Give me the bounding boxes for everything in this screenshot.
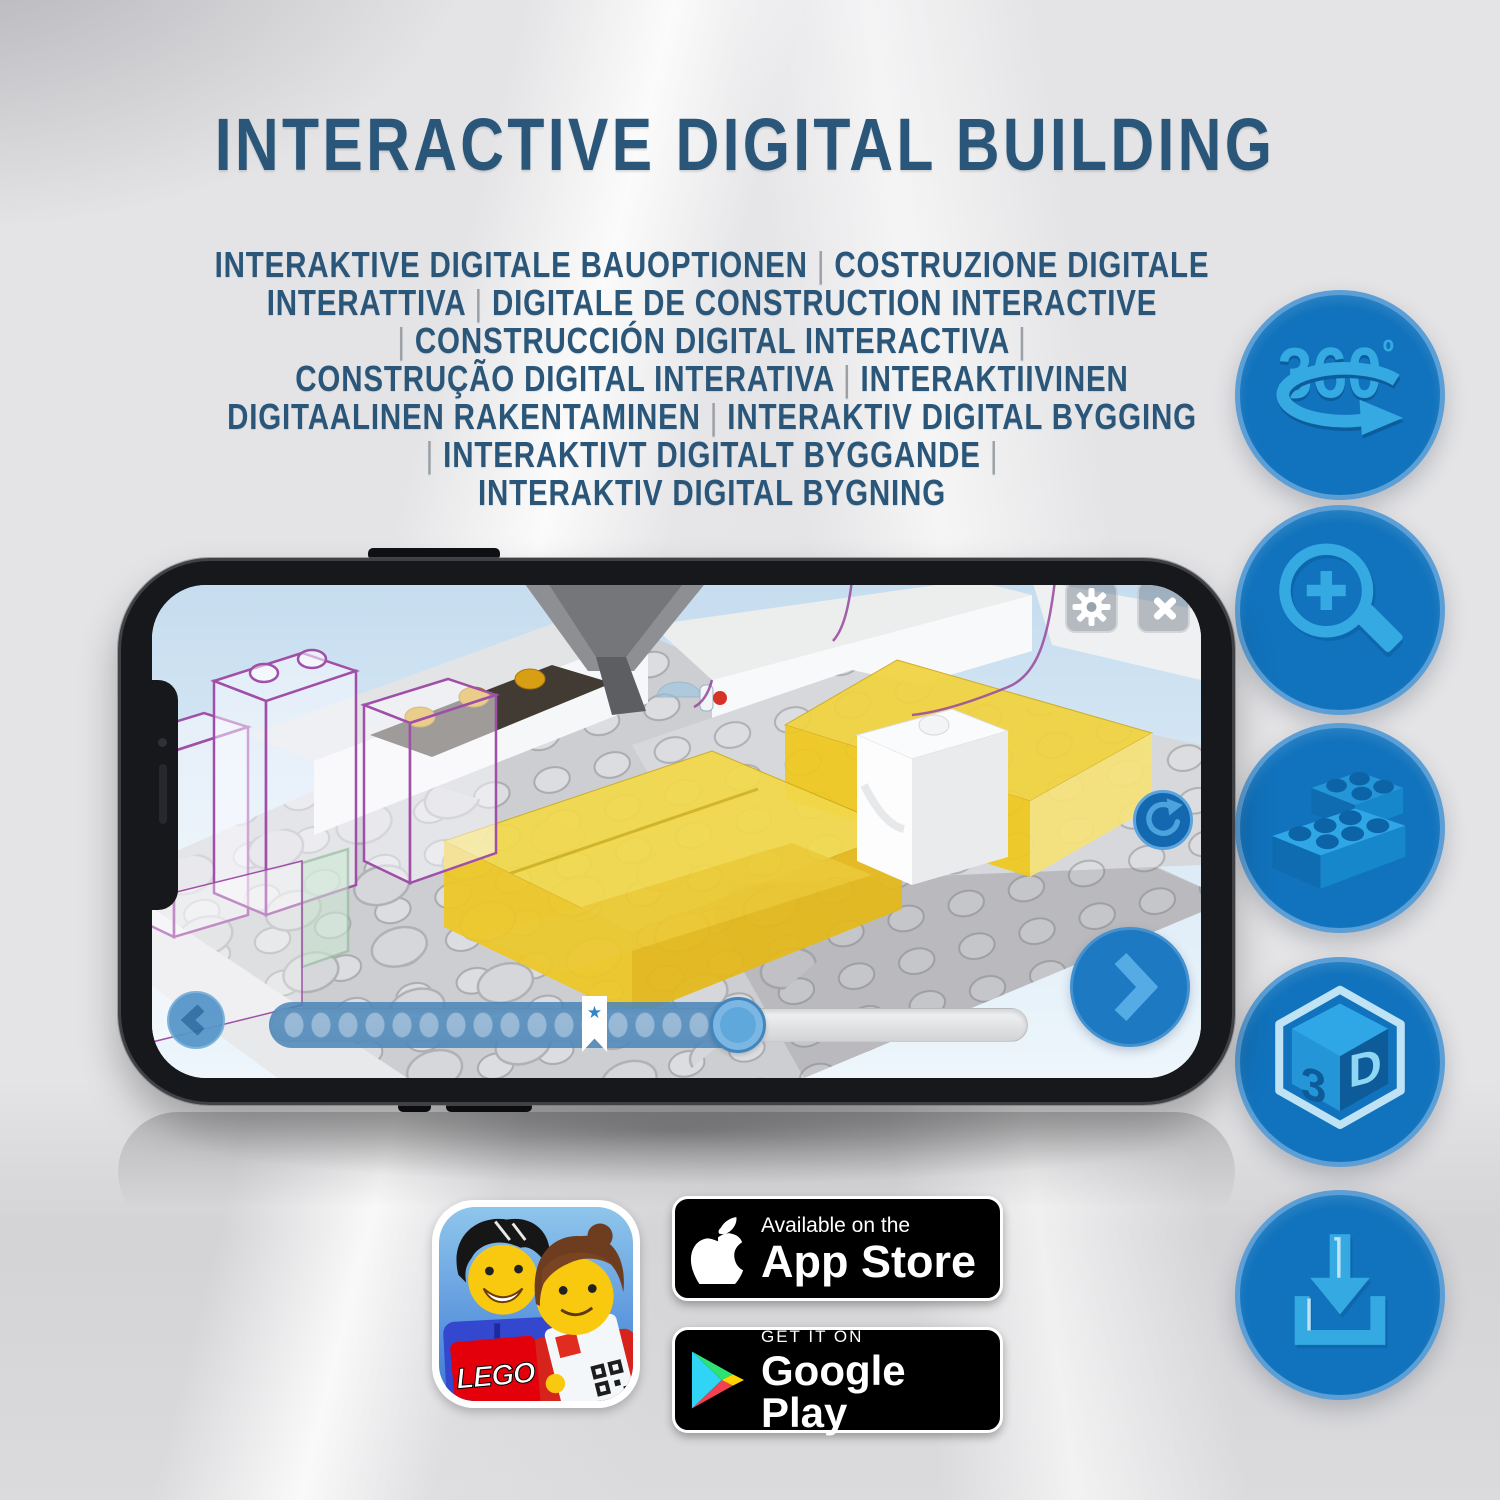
app-store-top-line: Available on the [761,1214,990,1238]
google-play-top-line: GET IT ON [761,1327,990,1347]
subtitle-line: DIGITAALINEN RAKENTAMINEN | INTERAKTIV D… [128,398,1296,436]
feature-download [1235,1190,1445,1400]
subtitle-line: INTERAKTIV DIGITAL BYGNING [128,474,1296,512]
rotate-360-icon: 360 360 º [1254,309,1426,481]
google-play-badge[interactable]: GET IT ON Google Play [672,1327,1003,1433]
rotate-icon [1136,793,1190,847]
speaker-slot [159,764,167,824]
settings-button[interactable] [1065,585,1118,633]
cube-3-label: 3 [1301,1056,1327,1114]
smartphone: ★ [118,558,1235,1105]
camera-icon [158,738,167,747]
subtitle-line: | INTERAKTIVT DIGITALT BYGGANDE | [128,436,1296,474]
zoom-in-icon [1254,524,1426,696]
app-screen: ★ [152,585,1201,1078]
subtitle-line: INTERAKTIVE DIGITALE BAUOPTIONEN | COSTR… [128,246,1296,284]
progress-fill [269,1002,765,1048]
lego-app-icon[interactable]: LEGO [432,1200,640,1408]
cube-d-label: D [1349,1038,1382,1097]
multilingual-subtitle: INTERAKTIVE DIGITALE BAUOPTIONEN | COSTR… [0,246,1424,512]
lego-bricks-icon [1254,742,1426,914]
feature-360: 360 360 º [1235,290,1445,500]
star-icon: ★ [587,1003,602,1022]
progress-step-dots [281,1008,755,1042]
degree-sign: º [1383,333,1394,371]
feature-bricks [1235,723,1445,933]
page-title: INTERACTIVE DIGITAL BUILDING [134,102,1356,187]
lego-logo: LEGO [450,1335,541,1401]
rotate-view-button[interactable] [1133,790,1193,850]
chevron-right-icon [1073,930,1187,1044]
close-button[interactable] [1137,585,1190,633]
next-step-button[interactable] [1070,927,1190,1047]
chevron-left-icon [169,993,223,1047]
feature-zoom [1235,505,1445,715]
subtitle-line: CONSTRUÇÃO DIGITAL INTERATIVA | INTERAKT… [128,360,1296,398]
feature-3d: 3 D [1235,957,1445,1167]
white-brick [857,709,1008,885]
app-store-bottom-line: App Store [761,1240,990,1284]
subtitle-line: | CONSTRUCCIÓN DIGITAL INTERACTIVA | [128,322,1296,360]
subtitle-line: INTERATTIVA | DIGITALE DE CONSTRUCTION I… [128,284,1296,322]
phone-notch [152,680,178,910]
google-play-bottom-line: Google Play [761,1350,990,1434]
download-icon [1254,1209,1426,1381]
previous-step-button[interactable] [167,991,225,1049]
3d-cube-icon: 3 D [1254,976,1426,1148]
app-store-badge[interactable]: Available on the App Store [672,1196,1003,1301]
minifig-accent [713,691,727,705]
google-play-icon [675,1346,761,1414]
progress-slider-handle[interactable] [710,997,766,1053]
page: { "header": { "title": "INTERACTIVE DIGI… [0,0,1500,1500]
apple-icon [675,1214,761,1284]
gear-icon [1067,585,1116,631]
lego-minifigures-art: LEGO [439,1207,633,1401]
